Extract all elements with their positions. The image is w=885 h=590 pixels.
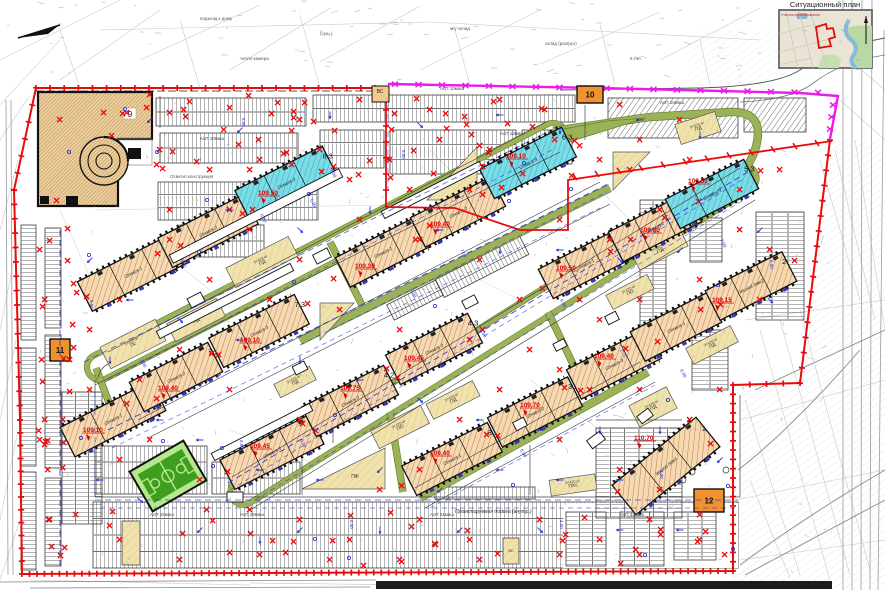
svg-text:Ситуационный план: Ситуационный план <box>790 0 860 9</box>
svg-text:6.00: 6.00 <box>769 260 774 269</box>
svg-text:склад (разгруз): склад (разгруз) <box>545 41 577 46</box>
svg-text:АсП 10маш: АсП 10маш <box>200 136 224 141</box>
svg-text:АсП 32маш: АсП 32маш <box>620 512 644 517</box>
svg-text:АсП 15маш: АсП 15маш <box>150 512 174 517</box>
svg-text:5.3: 5.3 <box>744 165 754 174</box>
svg-text:7.3: 7.3 <box>295 300 305 309</box>
svg-text:4.00: 4.00 <box>559 520 564 529</box>
svg-text:6.3: 6.3 <box>562 133 572 142</box>
svg-text:АсП 10маш: АсП 10маш <box>440 86 464 91</box>
svg-text:4.3: 4.3 <box>468 319 478 328</box>
svg-text:4.2: 4.2 <box>384 371 394 380</box>
svg-text:АсП 24маш: АсП 24маш <box>240 512 264 517</box>
svg-text:м/у склад: м/у склад <box>450 26 470 31</box>
svg-text:АсП 10маш: АсП 10маш <box>660 100 684 105</box>
svg-text:АсП 12маш: АсП 12маш <box>500 131 524 136</box>
svg-text:АсП 31маш: АсП 31маш <box>430 512 454 517</box>
svg-text:Осветит.конструкция: Осветит.конструкция <box>170 174 214 179</box>
svg-text:Участок проектирования: Участок проектирования <box>781 13 820 17</box>
svg-text:2: 2 <box>782 257 786 266</box>
svg-text:подъезд к дому: подъезд к дому <box>200 16 233 21</box>
svg-text:6.00: 6.00 <box>401 150 406 159</box>
svg-text:(сущ.): (сущ.) <box>320 31 333 36</box>
svg-text:ПФ: ПФ <box>351 474 359 480</box>
svg-text:6.00: 6.00 <box>349 520 354 529</box>
svg-text:Проектируемая дорога (внутр.): Проектируемая дорога (внутр.) <box>455 509 532 515</box>
svg-text:6.00: 6.00 <box>241 118 246 127</box>
svg-text:тепло-камера: тепло-камера <box>240 56 269 61</box>
svg-text:5.00: 5.00 <box>89 300 94 309</box>
svg-text:1: 1 <box>702 424 706 433</box>
svg-text:10: 10 <box>586 91 595 100</box>
svg-text:8.3: 8.3 <box>323 151 333 160</box>
svg-text:5.00: 5.00 <box>659 470 664 479</box>
svg-text:ВС: ВС <box>508 548 514 553</box>
svg-text:ВС: ВС <box>377 89 384 95</box>
svg-text:6 Лет: 6 Лет <box>630 56 641 61</box>
svg-text:6.00: 6.00 <box>239 440 244 449</box>
